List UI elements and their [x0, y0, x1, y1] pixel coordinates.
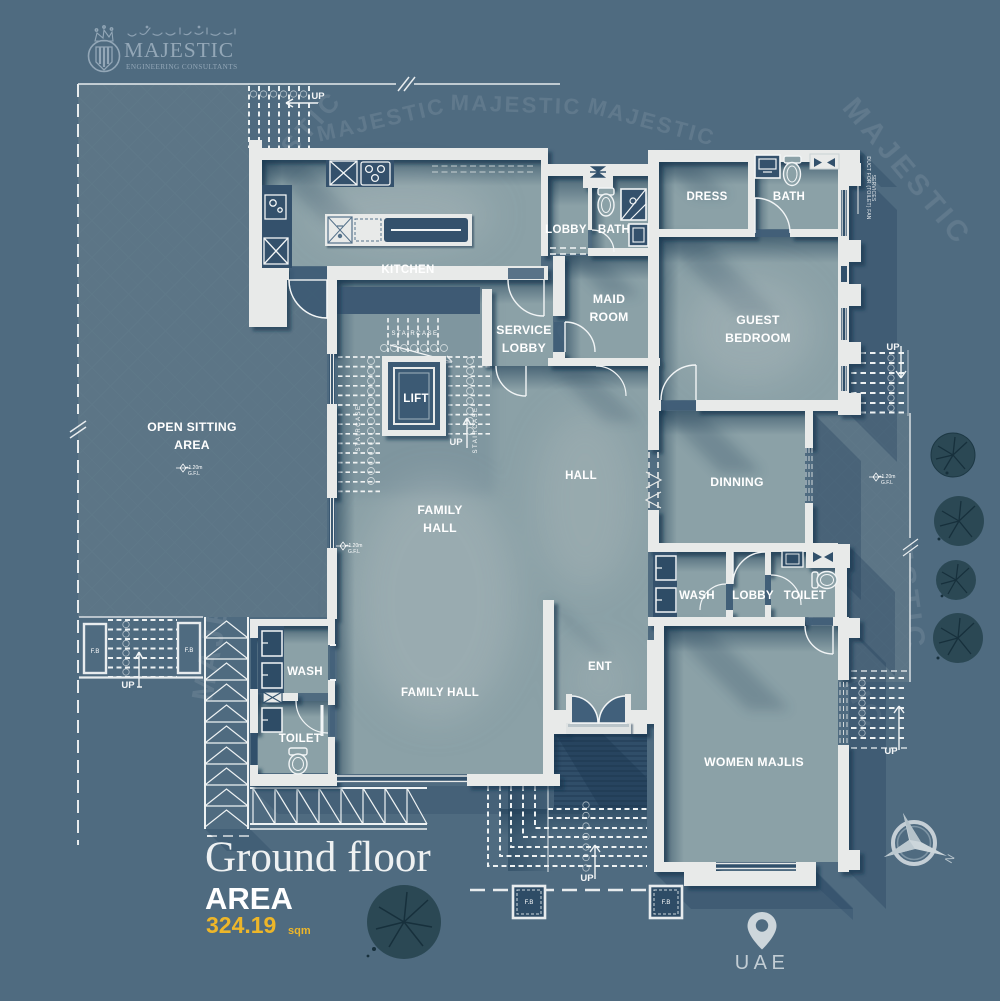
svg-text:FAMILY HALL: FAMILY HALL	[401, 687, 479, 699]
svg-text:LOBBY: LOBBY	[545, 224, 587, 236]
svg-text:UP: UP	[449, 437, 463, 448]
svg-text:TOILET: TOILET	[279, 733, 321, 745]
svg-text:F.B: F.B	[185, 648, 194, 654]
svg-text:STAIRCASE: STAIRCASE	[391, 331, 438, 337]
svg-text:324.19: 324.19	[206, 912, 276, 938]
svg-text:UP: UP	[886, 342, 900, 353]
svg-text:OPEN SITTING: OPEN SITTING	[147, 420, 237, 434]
svg-text:WASH: WASH	[679, 590, 715, 602]
svg-text:BATH: BATH	[598, 224, 630, 236]
svg-text:DRESS: DRESS	[686, 191, 727, 203]
svg-text:UP: UP	[121, 680, 135, 691]
svg-text:F.B: F.B	[525, 900, 534, 906]
svg-text:FAMILY: FAMILY	[417, 503, 462, 517]
svg-text:HALL: HALL	[565, 470, 597, 482]
svg-text:G.F.L: G.F.L	[188, 471, 200, 477]
svg-text:DUCT FOR (TOILET) FAN: DUCT FOR (TOILET) FAN	[865, 156, 871, 219]
svg-text:G.F.L: G.F.L	[348, 549, 360, 555]
svg-text:UP: UP	[884, 746, 898, 757]
svg-text:UP: UP	[580, 873, 594, 884]
svg-text:Ground floor: Ground floor	[205, 834, 431, 881]
svg-text:MAJESTIC: MAJESTIC	[124, 38, 234, 62]
svg-text:GUEST: GUEST	[736, 313, 780, 327]
svg-text:SERVICE: SERVICE	[496, 323, 551, 337]
svg-text:LOBBY: LOBBY	[502, 341, 546, 355]
svg-text:LIFT: LIFT	[403, 393, 428, 405]
svg-text:MAID: MAID	[593, 292, 625, 306]
svg-text:MAJESTIC: MAJESTIC	[450, 90, 582, 120]
svg-text:AREA: AREA	[205, 881, 293, 916]
svg-text:WASH: WASH	[287, 666, 323, 678]
svg-text:HALL: HALL	[423, 521, 457, 535]
svg-text:sqm: sqm	[288, 925, 311, 937]
svg-text:ENGINEERING CONSULTANTS: ENGINEERING CONSULTANTS	[126, 63, 238, 71]
svg-text:F.B: F.B	[662, 900, 671, 906]
svg-text:KITCHEN: KITCHEN	[381, 264, 434, 276]
svg-text:ENT: ENT	[588, 661, 612, 673]
svg-text:STAIRCASE: STAIRCASE	[473, 406, 479, 453]
svg-text:WOMEN MAJLIS: WOMEN MAJLIS	[704, 755, 804, 769]
svg-text:UP: UP	[311, 91, 325, 102]
svg-text:ROOM: ROOM	[589, 310, 628, 324]
svg-text:F.B: F.B	[91, 649, 100, 655]
svg-text:LOBBY: LOBBY	[732, 590, 774, 602]
svg-text:UAE: UAE	[735, 952, 790, 974]
svg-text:G.F.L: G.F.L	[881, 480, 893, 486]
svg-text:DINNING: DINNING	[710, 475, 764, 489]
svg-text:AREA: AREA	[174, 438, 210, 452]
svg-text:BEDROOM: BEDROOM	[725, 331, 791, 345]
svg-text:TOILET: TOILET	[784, 590, 826, 602]
svg-text:STAIRCASE: STAIRCASE	[356, 404, 362, 451]
svg-text:BATH: BATH	[773, 191, 805, 203]
